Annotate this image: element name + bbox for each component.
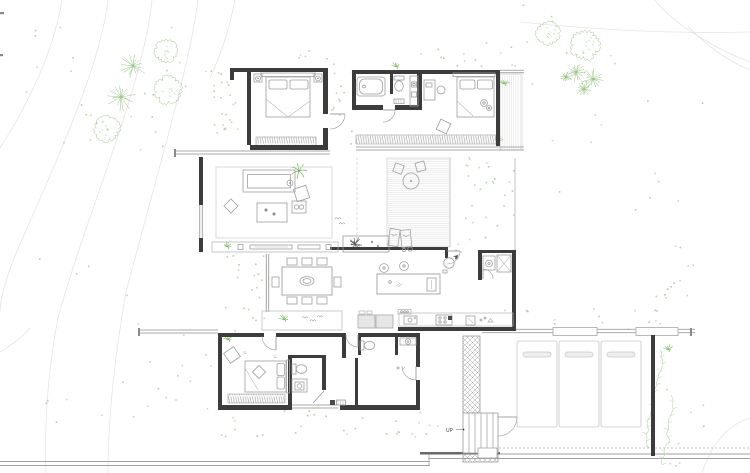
green-dot (213, 90, 215, 92)
green-dot (559, 191, 561, 193)
green-dot (649, 197, 651, 199)
green-dot (126, 295, 128, 297)
green-dot (158, 388, 160, 390)
furniture (407, 311, 409, 313)
green-dot (122, 382, 124, 384)
cabinet (376, 315, 393, 328)
green-dot (469, 157, 471, 159)
green-dots (455, 157, 514, 253)
green-dot (503, 205, 505, 207)
plant-dot (229, 340, 230, 341)
green-dot (177, 375, 179, 377)
shrub-squiggle (171, 90, 173, 92)
furniture (412, 92, 417, 97)
green-dot (207, 408, 209, 410)
pillow (460, 80, 475, 89)
green-dot (509, 181, 511, 183)
stair-landing (478, 448, 497, 458)
furniture (371, 241, 373, 243)
furniture (412, 82, 417, 87)
green-dot (664, 294, 666, 296)
green-dots (420, 42, 515, 67)
palm-frond (299, 171, 304, 177)
shrub-squiggle (164, 50, 166, 52)
shrub-squiggle (553, 33, 555, 35)
chair-icon (334, 277, 341, 287)
wall (340, 405, 420, 410)
green-dot (152, 116, 154, 118)
green-dot (228, 84, 230, 86)
green-dot (601, 124, 603, 126)
shrub-canopy (154, 75, 183, 105)
wardrobe-hatch (356, 135, 496, 144)
green-dot (36, 67, 38, 69)
green-dot (190, 381, 192, 383)
door-arc (346, 335, 358, 347)
green-dot (47, 400, 49, 402)
green-dot (248, 309, 250, 311)
green-dot (679, 280, 681, 282)
green-dot (333, 109, 335, 111)
green-dot (234, 429, 236, 431)
sink-counter (410, 76, 418, 106)
furniture (398, 284, 402, 287)
glazing-wall (200, 205, 203, 238)
garage-door-panel (636, 328, 678, 336)
green-dot (185, 86, 187, 88)
green-dot (511, 47, 513, 49)
green-dot (138, 323, 140, 325)
bed-icon (266, 77, 310, 117)
deck-hatch (500, 74, 522, 150)
shrub-squiggle (105, 135, 107, 137)
green-dot (333, 64, 335, 66)
tree-branch (576, 72, 585, 73)
green-dot (486, 162, 488, 164)
plant-dot (397, 67, 398, 68)
green-dot (86, 114, 88, 116)
green-dot (133, 416, 135, 418)
furniture (448, 316, 452, 320)
green-dot (256, 287, 258, 289)
chair-icon (272, 277, 279, 287)
glazing-wall (266, 254, 269, 312)
green-dot (339, 100, 341, 102)
green-dot (326, 58, 328, 60)
shrub-squiggle (169, 89, 171, 91)
green-dot (675, 245, 677, 247)
cabinet (358, 315, 375, 328)
door-swing (483, 269, 493, 279)
green-dot (331, 109, 333, 111)
hatch-layer (387, 74, 522, 462)
furniture (488, 107, 490, 109)
green-dot (494, 178, 496, 180)
furniture (377, 245, 379, 247)
shrub-squiggle (585, 45, 587, 47)
armchair-icon (293, 185, 309, 201)
shrub-icon (94, 115, 121, 142)
green-dot (670, 286, 672, 288)
floor-plan-canvas: architectural-floor-plan UP (0, 0, 750, 473)
furniture (426, 83, 432, 87)
coffee-table-icon (257, 203, 287, 222)
green-dot (232, 417, 234, 419)
pillow (290, 80, 308, 89)
green-dot (90, 115, 92, 117)
door-leaf (313, 391, 324, 403)
green-dot (481, 66, 483, 68)
green-dot (130, 116, 132, 118)
glazing-wall (356, 147, 524, 150)
furniture (439, 321, 441, 323)
plant-icon (663, 344, 672, 351)
glazing-wall (139, 330, 218, 333)
green-dot (243, 308, 245, 310)
green-dot (234, 330, 236, 332)
green-dot (463, 53, 465, 55)
furniture (363, 85, 366, 88)
bed-icon (457, 77, 494, 117)
pillow (478, 80, 493, 89)
green-dot (221, 82, 223, 84)
green-dot (595, 114, 597, 116)
green-dot (566, 52, 568, 54)
furniture (364, 341, 374, 349)
green-dot (702, 102, 704, 104)
furniture (483, 102, 485, 104)
green-dot (688, 265, 690, 267)
furniture (359, 311, 365, 314)
green-dot (591, 142, 593, 144)
up-label: UP (446, 428, 454, 434)
shrub-squiggle (165, 53, 167, 55)
green-dot (343, 92, 345, 94)
wardrobe-hatch (228, 394, 285, 403)
chair-icon (317, 258, 327, 265)
green-dot (144, 93, 146, 95)
green-dot (467, 165, 469, 167)
furniture (486, 260, 493, 267)
toilet-icon (292, 364, 296, 374)
green-dot (216, 132, 218, 134)
green-dot (226, 82, 228, 84)
green-dot (480, 188, 482, 190)
green-dot (472, 222, 474, 224)
wall (395, 337, 398, 355)
wall (288, 355, 326, 358)
car-windshield (607, 352, 635, 357)
edge-tick (138, 328, 140, 336)
green-dot (220, 97, 222, 99)
green-dot (221, 434, 223, 436)
wall (230, 68, 328, 72)
vine-leaf (657, 369, 661, 371)
cushion (224, 199, 238, 213)
green-dot (486, 42, 488, 44)
furniture (395, 81, 404, 91)
shrub-squiggle (105, 125, 107, 127)
shrub-squiggle (169, 96, 171, 98)
door-arc (262, 336, 276, 350)
green-dot (26, 91, 28, 93)
green-dot (56, 421, 58, 423)
wall (358, 333, 420, 337)
furniture (404, 311, 406, 313)
glazing-wall (500, 70, 524, 73)
furniture (457, 101, 473, 116)
green-dot (397, 431, 399, 433)
green-dot (457, 65, 459, 67)
vine-leaf (668, 421, 672, 423)
green-dot (486, 182, 488, 184)
green-dot (39, 258, 41, 260)
wall (416, 337, 420, 367)
car-icon (559, 341, 599, 427)
glazing-wall (292, 405, 338, 408)
green-dots (654, 245, 694, 324)
wall (352, 70, 500, 74)
cushion (253, 366, 266, 379)
shrub-squiggle (592, 44, 594, 46)
tree-center (120, 96, 122, 98)
green-dot (284, 410, 286, 412)
wall (416, 380, 420, 410)
furniture (484, 317, 486, 319)
wall (247, 72, 251, 145)
furniture (289, 182, 291, 184)
wall (390, 74, 393, 94)
green-dot (153, 94, 155, 96)
green-dot (552, 140, 554, 142)
green-dot (610, 55, 612, 57)
furniture (468, 318, 473, 323)
green-dot (258, 273, 260, 275)
green-dot (351, 131, 353, 133)
green-dot (437, 425, 439, 427)
furniture (397, 367, 399, 369)
green-dot (635, 209, 637, 211)
vine-leaf (673, 407, 677, 409)
armchair-icon (224, 347, 241, 364)
green-dot (654, 173, 656, 175)
green-dot (670, 463, 672, 465)
green-dot (213, 85, 215, 87)
tree-branch (593, 68, 594, 79)
garage-door-panel (553, 328, 597, 336)
green-dot (532, 83, 534, 85)
green-dot (214, 124, 216, 126)
planter-box (262, 311, 342, 330)
green-dot (255, 264, 257, 266)
furniture (265, 209, 268, 212)
pillow (277, 377, 285, 389)
tree-center (132, 65, 134, 67)
bird-icon (317, 316, 323, 317)
green-dot (513, 214, 515, 216)
green-dot (386, 433, 388, 435)
green-dot (667, 288, 669, 290)
green-dot (314, 414, 316, 416)
tree-center (583, 88, 585, 90)
wall (230, 68, 234, 80)
green-dot (656, 296, 658, 298)
shrub-squiggle (546, 27, 548, 29)
green-dot (469, 158, 471, 160)
green-dot (221, 113, 223, 115)
green-dot (655, 320, 657, 322)
vine-leaf (664, 428, 668, 430)
furniture (298, 245, 320, 249)
green-dot (218, 72, 220, 74)
plant-dot (285, 320, 286, 321)
vine-leaf (658, 376, 662, 378)
green-dot (396, 433, 398, 435)
wardrobe-strip (256, 137, 316, 146)
shrub-squiggle (174, 93, 176, 95)
furniture (300, 277, 314, 286)
green-dot (690, 412, 692, 414)
furniture (444, 321, 446, 323)
tree-icon (107, 86, 136, 112)
wall (496, 74, 500, 146)
green-dot (46, 402, 48, 404)
tree-icon (577, 83, 591, 95)
shrub-canopy (154, 39, 178, 63)
green-dot (237, 128, 239, 130)
wall (355, 358, 358, 405)
shrub-canopy (94, 115, 121, 142)
stone-wall-hatch (463, 336, 480, 413)
green-dot (554, 323, 556, 325)
furniture (486, 105, 491, 110)
contour-line (520, 22, 750, 33)
green-dots (666, 389, 704, 467)
vine-leaf (668, 435, 672, 437)
green-dot (140, 149, 142, 151)
furniture (317, 78, 318, 79)
green-dot (238, 264, 240, 266)
green-dot (440, 57, 442, 59)
up-leader-dot (463, 429, 465, 431)
green-dot (305, 56, 307, 58)
green-dot (210, 365, 212, 367)
furniture (299, 205, 303, 209)
bird-icon (302, 317, 308, 318)
furniture (367, 311, 372, 314)
bed-headboard (261, 73, 315, 77)
green-dot (205, 71, 207, 73)
wall (651, 335, 655, 456)
green-dot (523, 4, 525, 6)
shrub-squiggle (549, 31, 551, 33)
green-dot (264, 318, 266, 320)
furniture (297, 384, 302, 389)
green-dot (526, 41, 528, 43)
green-dot (513, 170, 515, 172)
furniture (481, 100, 488, 107)
green-dots (225, 255, 265, 332)
green-dot (259, 297, 261, 299)
green-dot (238, 269, 240, 271)
edge-tick (0, 54, 3, 56)
green-dot (225, 114, 227, 116)
furniture (389, 281, 392, 284)
green-dot (147, 405, 149, 407)
green-dot (229, 119, 231, 121)
tree-center (565, 76, 567, 78)
wall (250, 145, 328, 150)
contour-line (655, 0, 750, 62)
green-dot (504, 194, 506, 196)
green-dot (437, 49, 439, 51)
bird-icon (339, 223, 345, 224)
chair-icon (437, 86, 445, 94)
green-dot (426, 433, 428, 435)
furniture (396, 283, 400, 286)
shrub-squiggle (166, 46, 168, 48)
plant-icon (392, 63, 400, 69)
sofa-icon (243, 170, 295, 192)
green-dot (512, 190, 514, 192)
green-dot (420, 53, 422, 55)
green-dot (334, 73, 336, 75)
car-windshield (523, 352, 551, 357)
shrub-squiggle (166, 57, 168, 59)
contour-line (702, 418, 750, 473)
plant-dot (228, 247, 229, 248)
toilet-icon (394, 76, 404, 80)
green-dot (343, 430, 345, 432)
shrub-squiggle (582, 50, 584, 52)
green-dot (678, 200, 680, 202)
green-dot (514, 65, 516, 67)
green-dot (171, 27, 173, 29)
wall (323, 72, 328, 114)
wall (218, 405, 292, 410)
green-dot (149, 361, 151, 363)
plant-icon (278, 315, 288, 322)
edge-tick (0, 12, 4, 14)
green-dot (478, 167, 480, 169)
vine-leaf (660, 449, 664, 451)
shrub-canopy (570, 30, 601, 60)
green-dot (460, 252, 462, 254)
green-dot (72, 57, 74, 59)
green-dot (429, 425, 431, 427)
furniture (257, 78, 258, 79)
door-swing (383, 110, 395, 122)
furniture (408, 318, 412, 322)
shrub-squiggle (101, 130, 103, 132)
wardrobe-strip (228, 394, 285, 403)
green-dot (233, 104, 235, 106)
contour-line (210, 0, 235, 78)
chair-icon (287, 258, 297, 265)
green-dot (485, 237, 487, 239)
furniture (488, 319, 493, 323)
tree-branch (584, 85, 590, 89)
pillow (269, 80, 287, 89)
radiator (394, 99, 404, 104)
door-swing (498, 417, 517, 436)
green-dots (221, 410, 439, 438)
plant-dot (505, 84, 506, 85)
green-dot (214, 96, 216, 98)
tree-center (592, 78, 594, 80)
plant-dot (669, 350, 670, 351)
wall (478, 250, 516, 253)
